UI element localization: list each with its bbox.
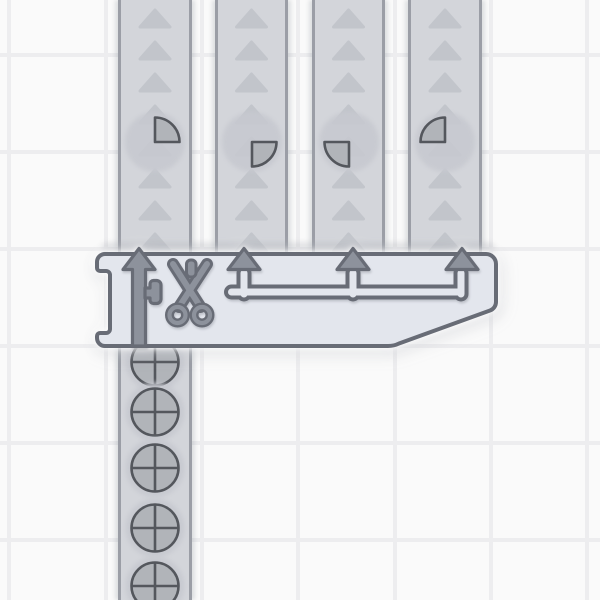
- output-belt-lane-3[interactable]: [312, 0, 385, 256]
- shape-item-quarter: [119, 106, 191, 178]
- output-belt-lane-4[interactable]: [408, 0, 482, 256]
- input-belt-lane[interactable]: [118, 340, 192, 600]
- shape-item-full-circle: [119, 550, 191, 600]
- shape-item-quarter: [216, 106, 288, 178]
- output-belt-lane-2[interactable]: [215, 0, 288, 256]
- output-belt-lane-1[interactable]: [118, 0, 192, 256]
- shape-item-quarter: [313, 106, 385, 178]
- shape-item-quarter: [409, 106, 481, 178]
- cutter-machine[interactable]: [97, 249, 496, 347]
- factory-board[interactable]: [0, 0, 600, 600]
